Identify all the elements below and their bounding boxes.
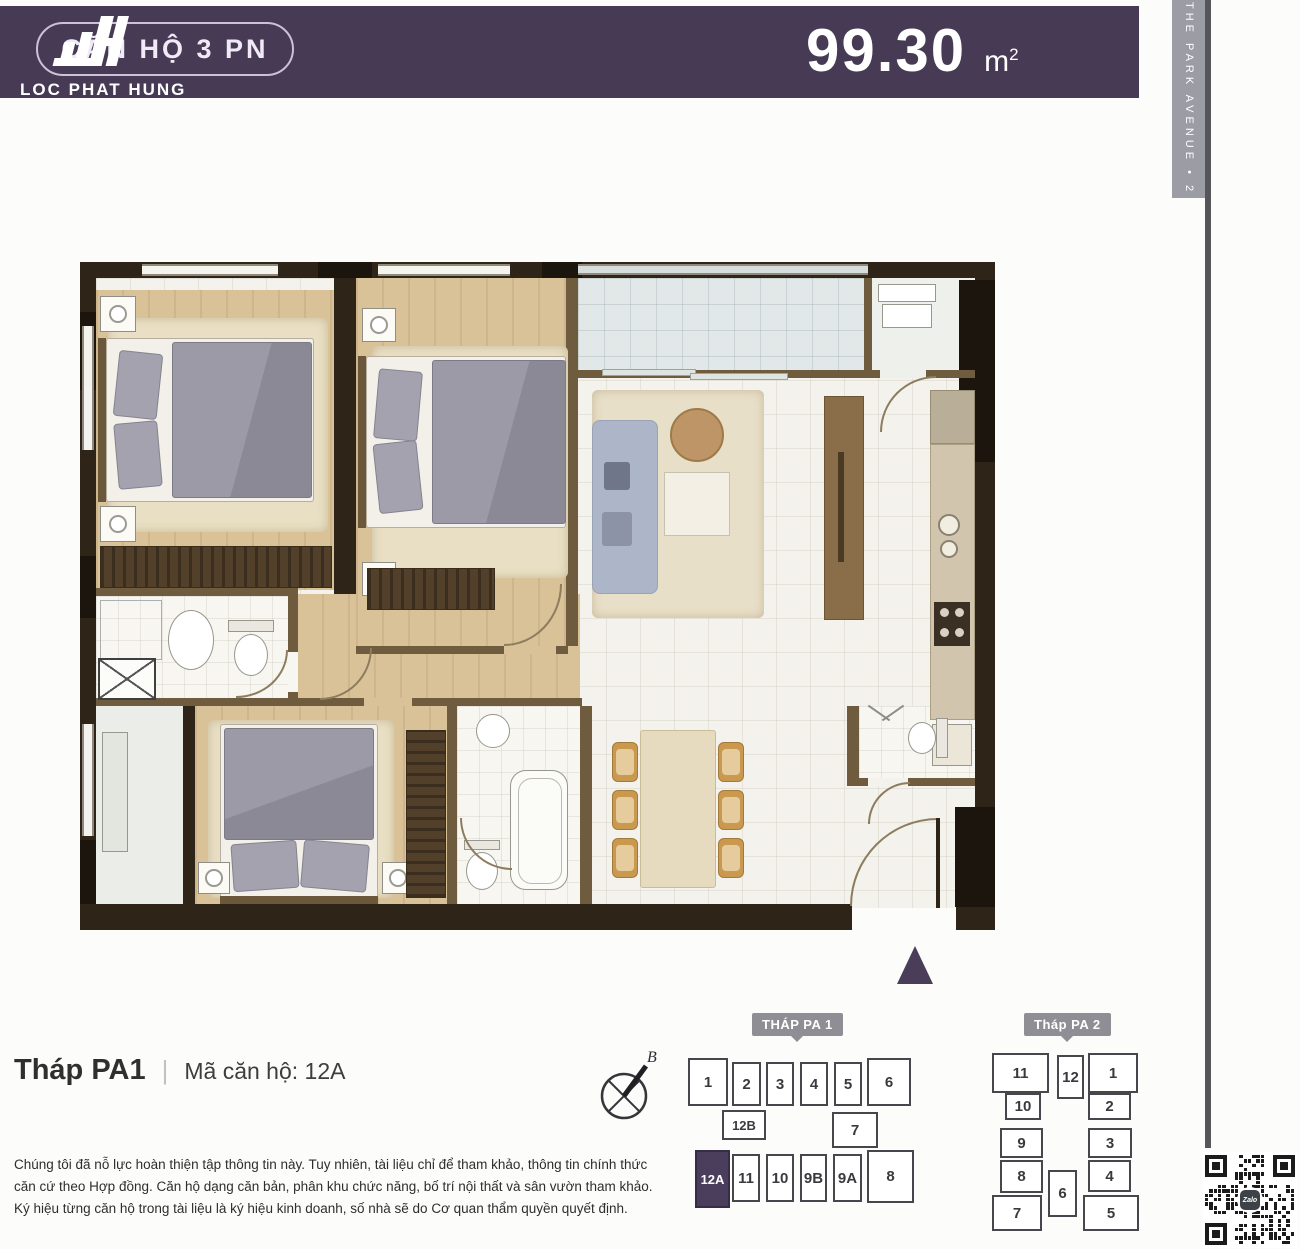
pillow	[372, 440, 423, 514]
tower-unit-6: 6	[1048, 1170, 1077, 1217]
dining-chair	[612, 838, 638, 878]
wardrobe	[367, 568, 495, 610]
loggia-bench	[102, 732, 128, 852]
tower-unit-8: 8	[1000, 1160, 1043, 1193]
tower-unit-11: 11	[992, 1053, 1049, 1093]
tower-unit-5: 5	[834, 1062, 862, 1106]
tower-unit-7: 7	[832, 1112, 878, 1148]
kitchen-sink	[938, 514, 960, 536]
tv-cabinet	[824, 396, 864, 620]
tower-pa2-diagram: 111098712612345	[988, 1048, 1144, 1234]
shower	[100, 600, 162, 660]
loc-phat-hung-logo-icon	[48, 12, 144, 83]
entrance-marker	[897, 946, 933, 984]
disclaimer-text: Chúng tôi đã nỗ lực hoàn thiện tập thông…	[14, 1154, 659, 1220]
tower-unit-7: 7	[992, 1195, 1042, 1231]
tv	[838, 452, 844, 562]
vanity-sink	[168, 610, 214, 670]
qr-finder	[1205, 1223, 1227, 1245]
tower-unit-10: 10	[1005, 1093, 1041, 1120]
area-figure: 99.30 m2	[806, 16, 1019, 85]
bathtub	[510, 770, 568, 890]
kitchen-upper-counter	[930, 390, 975, 444]
tower-unit-2: 2	[1088, 1093, 1131, 1120]
pillow	[113, 420, 163, 490]
tower-unit-8: 8	[867, 1150, 914, 1203]
window	[378, 264, 510, 276]
nightstand	[198, 862, 230, 894]
tower-unit-2: 2	[732, 1062, 761, 1106]
floor-plan	[80, 262, 995, 932]
qr-code: Zalo	[1202, 1152, 1298, 1248]
washing-machine	[882, 304, 932, 328]
tower-unit-4: 4	[1088, 1160, 1131, 1192]
header-bar: CĂN HỘ 3 PN LOC PHAT HUNG 99.30 m2	[0, 6, 1139, 98]
dining-chair	[718, 790, 744, 830]
disclaimer-line: Chúng tôi đã nỗ lực hoàn thiện tập thông…	[14, 1154, 659, 1176]
tower-unit-6: 6	[867, 1058, 911, 1106]
kitchen-counter	[930, 444, 975, 720]
wardrobe	[100, 546, 332, 588]
side-table	[664, 472, 730, 536]
tower-unit-10: 10	[766, 1154, 794, 1202]
vanity-sink	[476, 714, 510, 748]
window	[82, 724, 94, 836]
sofa-cushion	[604, 462, 630, 490]
dining-chair	[612, 742, 638, 782]
tower-unit-9: 9	[1000, 1128, 1043, 1158]
toilet	[228, 620, 274, 632]
sofa-cushion	[602, 512, 632, 546]
tower-unit-9B: 9B	[800, 1154, 827, 1202]
area-unit: m2	[984, 45, 1018, 79]
tower-unit-9A: 9A	[833, 1154, 862, 1202]
dining-table	[640, 730, 716, 888]
floor-balcony	[578, 278, 864, 370]
stove	[934, 602, 970, 646]
window	[82, 326, 94, 450]
unit-code: Mã căn hộ: 12A	[184, 1058, 345, 1085]
divider: |	[162, 1055, 169, 1086]
qr-finder	[1205, 1155, 1227, 1177]
coffee-table-round	[670, 408, 724, 462]
duvet	[224, 728, 374, 840]
balcony-railing	[578, 264, 868, 275]
duvet	[432, 360, 566, 524]
toilet	[908, 722, 936, 754]
window	[142, 264, 278, 276]
tower-unit-4: 4	[800, 1062, 828, 1106]
qr-logo: Zalo	[1237, 1187, 1263, 1213]
headboard	[358, 356, 366, 528]
qr-finder	[1273, 1155, 1295, 1177]
svg-text:B: B	[647, 1049, 657, 1066]
sofa	[592, 420, 658, 594]
tower-pa1-tag: THÁP PA 1	[752, 1013, 843, 1036]
compass-icon: B	[592, 1044, 670, 1133]
tower-unit-1: 1	[688, 1058, 728, 1106]
tower-pa2-tag: Tháp PA 2	[1024, 1013, 1111, 1036]
dining-chair	[612, 790, 638, 830]
tower-unit-3: 3	[766, 1062, 794, 1106]
tower-unit-12: 12	[1057, 1055, 1084, 1099]
dining-chair	[718, 742, 744, 782]
duvet	[172, 342, 312, 498]
tower-unit-12A: 12A	[695, 1150, 730, 1208]
nightstand	[362, 308, 396, 342]
toilet	[936, 718, 948, 758]
tower-unit-11: 11	[732, 1154, 760, 1202]
disclaimer-line: Ký hiệu từng căn hộ trong tài liệu là ký…	[14, 1198, 659, 1220]
kitchen-sink	[940, 540, 958, 558]
nightstand	[100, 506, 136, 542]
washing-machine	[878, 284, 936, 302]
tower-unit-12B: 12B	[722, 1110, 766, 1140]
pillow	[373, 368, 423, 442]
dining-chair	[718, 838, 744, 878]
sliding-door	[690, 373, 788, 380]
tower-unit-5: 5	[1083, 1195, 1139, 1231]
side-ribbon: THE PARK AVENUE • 2	[1172, 0, 1206, 198]
tower-unit-1: 1	[1088, 1053, 1138, 1093]
disclaimer-line: căn cứ theo Hợp đồng. Căn hộ dạng căn bả…	[14, 1176, 659, 1198]
tower-unit-3: 3	[1088, 1128, 1132, 1158]
headboard	[98, 338, 106, 502]
entrance-door-leaf	[936, 818, 940, 908]
tower-pa1-diagram: 12345612B712A11109B9A8	[686, 1058, 916, 1208]
wardrobe	[406, 730, 446, 898]
side-ribbon-text: THE PARK AVENUE • 2	[1183, 2, 1195, 195]
brochure-page: CĂN HỘ 3 PN LOC PHAT HUNG 99.30 m2 THE P…	[0, 0, 1300, 1249]
tower-name: Tháp PA1	[14, 1054, 146, 1087]
logo-text: LOC PHAT HUNG	[20, 80, 186, 100]
pillow	[230, 840, 299, 892]
sliding-door	[602, 369, 696, 376]
shaft	[98, 658, 156, 700]
nightstand	[100, 296, 136, 332]
page-edge-line	[1205, 0, 1211, 1148]
unit-info: Tháp PA1 | Mã căn hộ: 12A	[14, 1054, 345, 1087]
pillow	[300, 839, 370, 893]
pillow	[113, 350, 164, 420]
headboard	[220, 896, 378, 904]
area-value: 99.30	[806, 16, 966, 85]
